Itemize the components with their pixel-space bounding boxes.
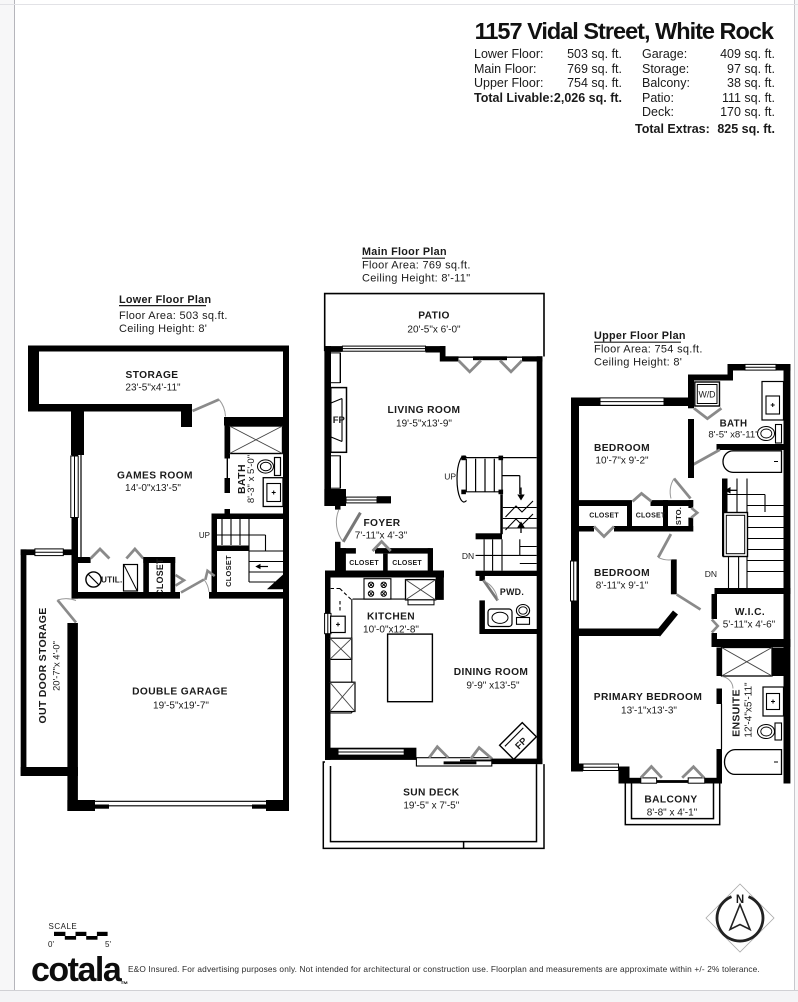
svg-text:14'-0"x13'-5": 14'-0"x13'-5" bbox=[125, 483, 181, 494]
svg-text:20'-7"x 4'-0": 20'-7"x 4'-0" bbox=[51, 641, 62, 691]
svg-text:8'-5" x8'-11": 8'-5" x8'-11" bbox=[708, 430, 758, 441]
svg-text:10'-0"x12'-8": 10'-0"x12'-8" bbox=[363, 625, 419, 636]
svg-text:8'-8" x 4'-1": 8'-8" x 4'-1" bbox=[647, 808, 698, 819]
svg-text:ENSUITE: ENSUITE bbox=[731, 689, 743, 737]
svg-text:19'-5"x13'-9": 19'-5"x13'-9" bbox=[396, 419, 452, 430]
svg-text:Ceiling Height: 8': Ceiling Height: 8' bbox=[119, 323, 207, 335]
svg-text:13'-1"x13'-3": 13'-1"x13'-3" bbox=[621, 706, 677, 717]
svg-text:FOYER: FOYER bbox=[363, 518, 400, 529]
svg-text:STORAGE: STORAGE bbox=[126, 370, 179, 381]
svg-text:PATIO: PATIO bbox=[418, 311, 450, 322]
svg-text:5'-11"x 4'-6": 5'-11"x 4'-6" bbox=[723, 620, 776, 631]
svg-text:12'-4"x5'-11": 12'-4"x5'-11" bbox=[744, 682, 755, 738]
svg-text:Floor Area: 769 sq.ft.: Floor Area: 769 sq.ft. bbox=[362, 260, 471, 272]
svg-text:8'-3" x 5'-0": 8'-3" x 5'-0" bbox=[246, 455, 257, 503]
svg-text:Ceiling Height: 8'-11": Ceiling Height: 8'-11" bbox=[362, 273, 470, 285]
svg-text:DINING ROOM: DINING ROOM bbox=[454, 667, 529, 678]
svg-text:8'-11"x 9'-1": 8'-11"x 9'-1" bbox=[596, 581, 649, 592]
svg-text:SUN DECK: SUN DECK bbox=[403, 788, 460, 799]
svg-text:DN: DN bbox=[462, 551, 474, 561]
svg-text:UP: UP bbox=[444, 472, 456, 482]
svg-text:Lower Floor Plan: Lower Floor Plan bbox=[119, 294, 211, 306]
svg-text:CLOSET: CLOSET bbox=[155, 558, 165, 596]
svg-text:SCALE: SCALE bbox=[49, 922, 78, 931]
svg-text:BATH: BATH bbox=[720, 419, 748, 430]
svg-text:KITCHEN: KITCHEN bbox=[367, 612, 415, 623]
svg-text:BALCONY: BALCONY bbox=[644, 795, 697, 806]
svg-text:Upper Floor Plan: Upper Floor Plan bbox=[594, 330, 686, 342]
svg-text:GAMES ROOM: GAMES ROOM bbox=[117, 471, 193, 482]
svg-text:BEDROOM: BEDROOM bbox=[594, 568, 650, 579]
svg-text:9'-9" x13'-5": 9'-9" x13'-5" bbox=[466, 681, 520, 692]
svg-text:10'-7"x 9'-2": 10'-7"x 9'-2" bbox=[595, 456, 649, 467]
svg-text:UP: UP bbox=[199, 531, 210, 540]
svg-text:19'-5" x 7'-5": 19'-5" x 7'-5" bbox=[403, 801, 459, 812]
svg-text:FP: FP bbox=[333, 415, 346, 426]
svg-text:CLOSET: CLOSET bbox=[349, 560, 379, 567]
svg-text:20'-5"x 6'-0": 20'-5"x 6'-0" bbox=[407, 325, 461, 336]
svg-text:PWD.: PWD. bbox=[500, 587, 524, 597]
svg-text:CLOSET: CLOSET bbox=[589, 513, 619, 520]
svg-text:STO.: STO. bbox=[674, 507, 683, 525]
svg-text:7'-11"x 4'-3": 7'-11"x 4'-3" bbox=[355, 531, 408, 542]
svg-text:CLOSET: CLOSET bbox=[224, 555, 233, 587]
svg-text:5': 5' bbox=[105, 940, 111, 949]
svg-text:23'-5"x4'-11": 23'-5"x4'-11" bbox=[125, 383, 181, 394]
svg-text:Ceiling Height: 8': Ceiling Height: 8' bbox=[594, 357, 682, 369]
svg-text:BEDROOM: BEDROOM bbox=[594, 443, 650, 454]
svg-text:DN: DN bbox=[705, 569, 717, 579]
svg-text:W/D: W/D bbox=[698, 390, 715, 400]
svg-text:CLOSET: CLOSET bbox=[392, 560, 422, 567]
svg-text:LIVING ROOM: LIVING ROOM bbox=[388, 405, 461, 416]
svg-text:CLOSET: CLOSET bbox=[636, 513, 666, 520]
svg-text:0': 0' bbox=[48, 940, 54, 949]
svg-text:19'-5"x19'-7": 19'-5"x19'-7" bbox=[153, 701, 209, 712]
svg-text:UTIL.: UTIL. bbox=[101, 576, 122, 585]
svg-text:DOUBLE GARAGE: DOUBLE GARAGE bbox=[132, 687, 228, 698]
svg-text:Main Floor Plan: Main Floor Plan bbox=[362, 246, 447, 258]
svg-text:OUT DOOR STORAGE: OUT DOOR STORAGE bbox=[37, 607, 49, 723]
svg-text:W.I.C.: W.I.C. bbox=[735, 607, 765, 618]
svg-text:PRIMARY BEDROOM: PRIMARY BEDROOM bbox=[594, 692, 702, 703]
svg-text:Floor Area: 754 sq.ft.: Floor Area: 754 sq.ft. bbox=[594, 344, 703, 356]
svg-text:Floor Area: 503 sq.ft.: Floor Area: 503 sq.ft. bbox=[119, 310, 228, 322]
